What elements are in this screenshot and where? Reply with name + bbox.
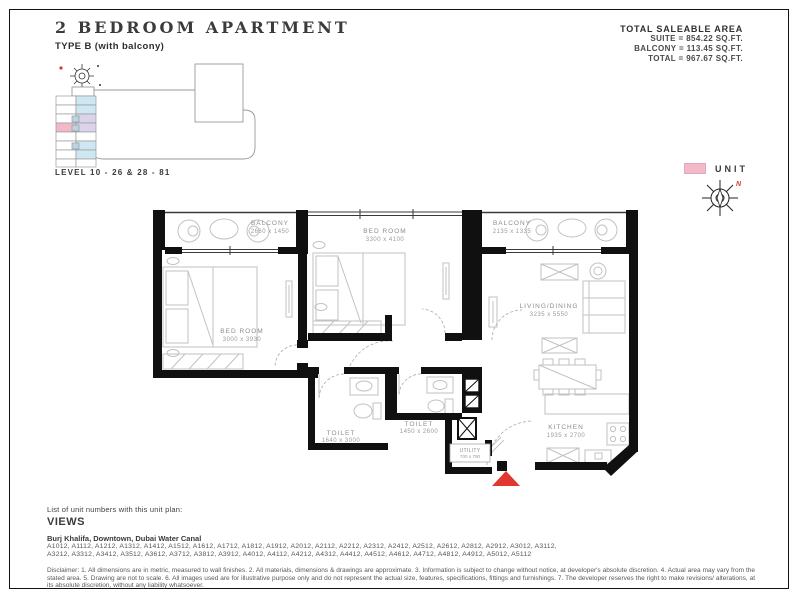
bedroom2-label: BED ROOM (363, 228, 406, 235)
saleable-area-heading: TOTAL SALEABLE AREA (620, 24, 743, 34)
compass-north-label: N (736, 181, 742, 188)
balcony1-dims: 2660 x 1450 (251, 229, 290, 235)
bedroom2-dims: 3300 x 4100 (366, 237, 405, 243)
keyplan-compass-icon (59, 64, 101, 88)
bedroom1-label: BED ROOM (220, 328, 263, 335)
unit-color-swatch (684, 163, 706, 174)
views-text: Burj Khalifa, Downtown, Dubai Water Cana… (47, 534, 201, 543)
page-title: 2 BEDROOM APARTMENT (55, 18, 350, 37)
unit-legend-label: UNIT (715, 164, 748, 174)
saleable-area-balcony: BALCONY = 113.45 SQ.FT. (620, 44, 743, 54)
toilet2-dims: 1450 x 2600 (400, 429, 439, 435)
room-labels: BALCONY 2660 x 1450 BED ROOM 3300 x 4100… (220, 220, 585, 459)
balcony2-furniture (526, 219, 617, 241)
saleable-area-block: TOTAL SALEABLE AREA SUITE = 854.22 SQ.FT… (620, 24, 743, 64)
saleable-area-total: TOTAL = 967.67 SQ.FT. (620, 54, 743, 64)
keyplan-diagram (48, 58, 263, 168)
toilet2-fixtures (399, 374, 453, 414)
unit-list-label: List of unit numbers with this unit plan… (47, 505, 182, 514)
toilet1-dims: 1640 x 3000 (322, 438, 361, 444)
unit-numbers-line1: A1012, A1112, A1212, A1312, A1412, A1512… (47, 543, 557, 551)
bedroom1-furniture (163, 258, 292, 370)
unit-legend: UNIT (684, 163, 748, 174)
bedroom1-dims: 3000 x 3930 (223, 337, 262, 343)
views-heading: VIEWS (47, 516, 85, 528)
floor-plan: BALCONY 2660 x 1450 BED ROOM 3300 x 4100… (145, 197, 685, 497)
kitchen-label: KITCHEN (548, 424, 584, 431)
compass-rose-icon: N (692, 176, 754, 220)
keyplan-building-outline (72, 64, 255, 159)
unit-numbers-line2: A3212, A3312, A3412, A3512, A3612, A3712… (47, 551, 531, 559)
balcony1-label: BALCONY (251, 220, 289, 227)
living-furniture (489, 263, 625, 395)
disclaimer-text: Disclaimer: 1. All dimensions are in met… (47, 567, 755, 590)
living-dims: 3235 x 5550 (530, 312, 569, 318)
living-label: LIVING/DINING (520, 303, 579, 310)
entrance-marker (492, 471, 520, 486)
balcony2-dims: 2135 x 1335 (493, 229, 532, 235)
keyplan-unit-cells (56, 96, 96, 167)
page-subtitle: TYPE B (with balcony) (55, 41, 164, 52)
utility-dims: 700 x 790 (460, 454, 481, 459)
toilet1-label: TOILET (327, 430, 356, 437)
toilet2-label: TOILET (405, 421, 434, 428)
balcony2-label: BALCONY (493, 220, 531, 227)
level-label: LEVEL 10 - 26 & 28 - 81 (55, 168, 171, 177)
bedroom2-furniture (313, 242, 449, 336)
saleable-area-suite: SUITE = 854.22 SQ.FT. (620, 34, 743, 44)
kitchen-dims: 1935 x 2700 (547, 433, 586, 439)
toilet1-fixtures (319, 374, 381, 419)
